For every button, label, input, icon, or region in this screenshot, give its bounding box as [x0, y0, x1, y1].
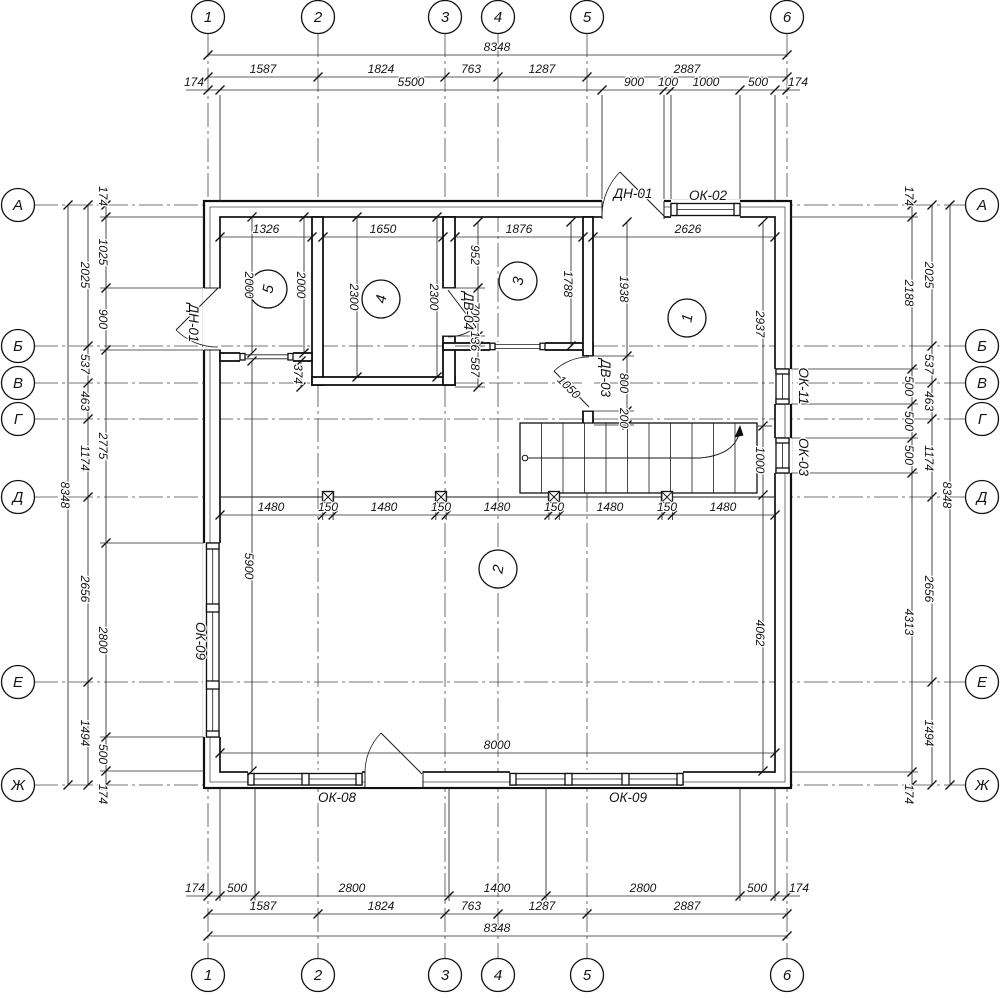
- axis-label: 3: [441, 967, 450, 984]
- axis-bubbles: 1 2 3 4 5 6 1 2 3 4 5 6 А Б В Г Д Е Ж А …: [2, 1, 999, 992]
- axis-label: В: [977, 375, 987, 392]
- dim-label: 587: [468, 357, 482, 378]
- dim-label: 8348: [484, 40, 511, 54]
- dim-label: 1824: [368, 899, 395, 913]
- floor-plan-drawing: 1 2 3 4 5 6 1 2 3 4 5 6 А Б В Г Д Е Ж А …: [0, 0, 1000, 993]
- dim-label: 900: [624, 75, 644, 89]
- dim-label: 500: [747, 881, 767, 895]
- dim-label: 2800: [338, 881, 366, 895]
- dim-label: 2656: [922, 575, 936, 603]
- door-label-dn01-top: ДН-01: [612, 186, 653, 201]
- dim-label: 763: [461, 899, 481, 913]
- dim-label: 2626: [674, 222, 702, 236]
- dim-label: 150: [431, 500, 451, 514]
- axis-label: Б: [977, 338, 987, 355]
- axis-label: Б: [13, 338, 23, 355]
- dim-label: 1000: [693, 75, 720, 89]
- dim-label: 1587: [250, 899, 278, 913]
- interior-walls: [220, 217, 593, 425]
- axis-label: 4: [494, 967, 502, 984]
- axis-label: В: [13, 375, 23, 392]
- dim-label: 1287: [529, 899, 557, 913]
- window-label-ok08: ОК-08: [318, 790, 356, 805]
- dim-label: 174: [184, 75, 204, 89]
- dim-label: 500: [902, 376, 916, 396]
- dim-label: 800: [617, 373, 631, 393]
- dim-label: 174: [788, 75, 808, 89]
- dim-label: 5500: [398, 75, 425, 89]
- dim-label: 500: [902, 411, 916, 431]
- axis-label: Ж: [10, 777, 26, 794]
- dim-label: 8348: [58, 482, 72, 509]
- door-label-dv04: ДВ-04: [461, 290, 476, 330]
- window-label-ok03: ОК-03: [796, 438, 811, 476]
- dim-label: 1174: [922, 445, 936, 471]
- dimension-lines: [68, 55, 950, 936]
- dim-label: 2800: [96, 626, 110, 654]
- dim-label: 2887: [673, 899, 702, 913]
- axis-label: Д: [11, 489, 24, 506]
- door-label-dn01-left: ДН-01: [186, 302, 201, 343]
- axis-label: 4: [494, 9, 502, 26]
- dim-label: 2025: [78, 261, 92, 289]
- dim-label: 1287: [529, 62, 557, 76]
- dim-label: 8348: [484, 921, 511, 935]
- dim-label: 500: [748, 75, 768, 89]
- axis-label: 2: [313, 967, 323, 984]
- dim-label: 763: [461, 62, 481, 76]
- dim-label: 150: [544, 500, 564, 514]
- axis-grid-lines: [34, 33, 966, 958]
- stair-direction-start: [522, 455, 528, 461]
- dim-label: 1480: [371, 500, 398, 514]
- axis-label: 5: [583, 9, 592, 26]
- dim-label: 2025: [922, 261, 936, 289]
- top-dimension-texts: 8348 1587 1824 763 1287 2887 174 5500 90…: [184, 40, 808, 89]
- axis-label: А: [976, 197, 987, 214]
- dim-label: 1650: [370, 222, 397, 236]
- dim-label: 174: [96, 186, 110, 206]
- axis-label: А: [12, 197, 23, 214]
- dim-label: 2775: [96, 432, 110, 460]
- dim-label: 500: [96, 744, 110, 764]
- dim-label: 174: [96, 784, 110, 804]
- dim-label: 1400: [484, 881, 511, 895]
- axis-label: Е: [977, 674, 988, 691]
- dim-label: 4062: [753, 620, 767, 647]
- dim-label: 2887: [673, 62, 702, 76]
- dim-label: 2656: [78, 575, 92, 603]
- dim-label: 537: [78, 354, 92, 375]
- dim-label: 136: [468, 331, 482, 351]
- dim-label: 2800: [629, 881, 657, 895]
- dim-label: 952: [468, 245, 482, 265]
- exterior-walls: [204, 201, 791, 788]
- dim-label: 1938: [617, 276, 631, 303]
- dim-label: 900: [96, 309, 110, 329]
- axis-label: 6: [783, 9, 792, 26]
- dimension-ticks: [64, 51, 955, 941]
- dim-label: 1494: [922, 720, 936, 747]
- dim-label: 2000: [242, 271, 256, 299]
- dim-label: 500: [902, 445, 916, 465]
- dim-label: 1824: [368, 62, 395, 76]
- axis-label: 1: [204, 9, 212, 26]
- axis-label: 2: [313, 9, 323, 26]
- bottom-dimension-texts: 174 500 2800 1400 2800 500 174 1587 1824…: [185, 881, 809, 935]
- dim-label: 1494: [78, 720, 92, 747]
- window-label-ok09-bottom: ОК-09: [609, 790, 647, 805]
- dim-label: 1174: [78, 445, 92, 471]
- dim-label: 2188: [902, 279, 916, 307]
- dim-label: 2000: [294, 271, 308, 299]
- dim-label: 1587: [250, 62, 278, 76]
- window-label-ok02: ОК-02: [689, 188, 727, 203]
- axis-label: Д: [975, 489, 988, 506]
- dim-label: 4313: [902, 609, 916, 636]
- dim-label: 100: [658, 75, 678, 89]
- dim-label: 200: [617, 407, 631, 428]
- dim-label: 2937: [753, 310, 767, 339]
- axis-label: 6: [783, 967, 792, 984]
- dim-label: 1000: [753, 447, 767, 474]
- dim-label: 1480: [258, 500, 285, 514]
- dim-label: 150: [657, 500, 677, 514]
- dim-label: 1480: [597, 500, 624, 514]
- dim-label: 1480: [710, 500, 737, 514]
- dim-label: 537: [922, 354, 936, 375]
- axis-label: Ж: [974, 777, 990, 794]
- dim-label: 1025: [96, 239, 110, 266]
- dim-label: 374: [291, 364, 305, 384]
- dim-label: 2300: [347, 283, 361, 311]
- dim-label: 150: [318, 500, 338, 514]
- dim-label: 463: [78, 391, 92, 411]
- axis-label: 5: [583, 967, 592, 984]
- left-dimension-texts: 8348 2025 537 463 1174 2656 1494 174 102…: [58, 186, 110, 804]
- window-label-ok11: ОК-11: [796, 368, 811, 405]
- dim-label: 1788: [561, 271, 575, 298]
- dim-label: 5900: [242, 553, 256, 580]
- stairs: [520, 423, 757, 493]
- dim-label: 174: [185, 881, 205, 895]
- dim-label: 8000: [484, 738, 511, 752]
- dim-label: 1876: [506, 222, 533, 236]
- dim-label: 500: [227, 881, 247, 895]
- dim-label: 463: [922, 391, 936, 411]
- axis-label: 3: [441, 9, 450, 26]
- right-dimension-texts: 174 2188 500 500 500 4313 174 2025 537 4…: [902, 186, 954, 804]
- dim-label: 174: [902, 186, 916, 206]
- dim-label: 8348: [940, 482, 954, 509]
- floor-plan-sheet: 1 2 3 4 5 6 1 2 3 4 5 6 А Б В Г Д Е Ж А …: [0, 0, 1000, 993]
- dim-label: 2300: [427, 283, 441, 311]
- dim-label: 174: [789, 881, 809, 895]
- dim-label: 174: [902, 784, 916, 804]
- door-label-dv03: ДВ-03: [598, 357, 613, 398]
- axis-label: Е: [13, 674, 24, 691]
- dim-label: 1480: [484, 500, 511, 514]
- dim-label: 1326: [253, 222, 280, 236]
- axis-label: 1: [204, 967, 212, 984]
- window-label-ok09-left: ОК-09: [193, 622, 208, 660]
